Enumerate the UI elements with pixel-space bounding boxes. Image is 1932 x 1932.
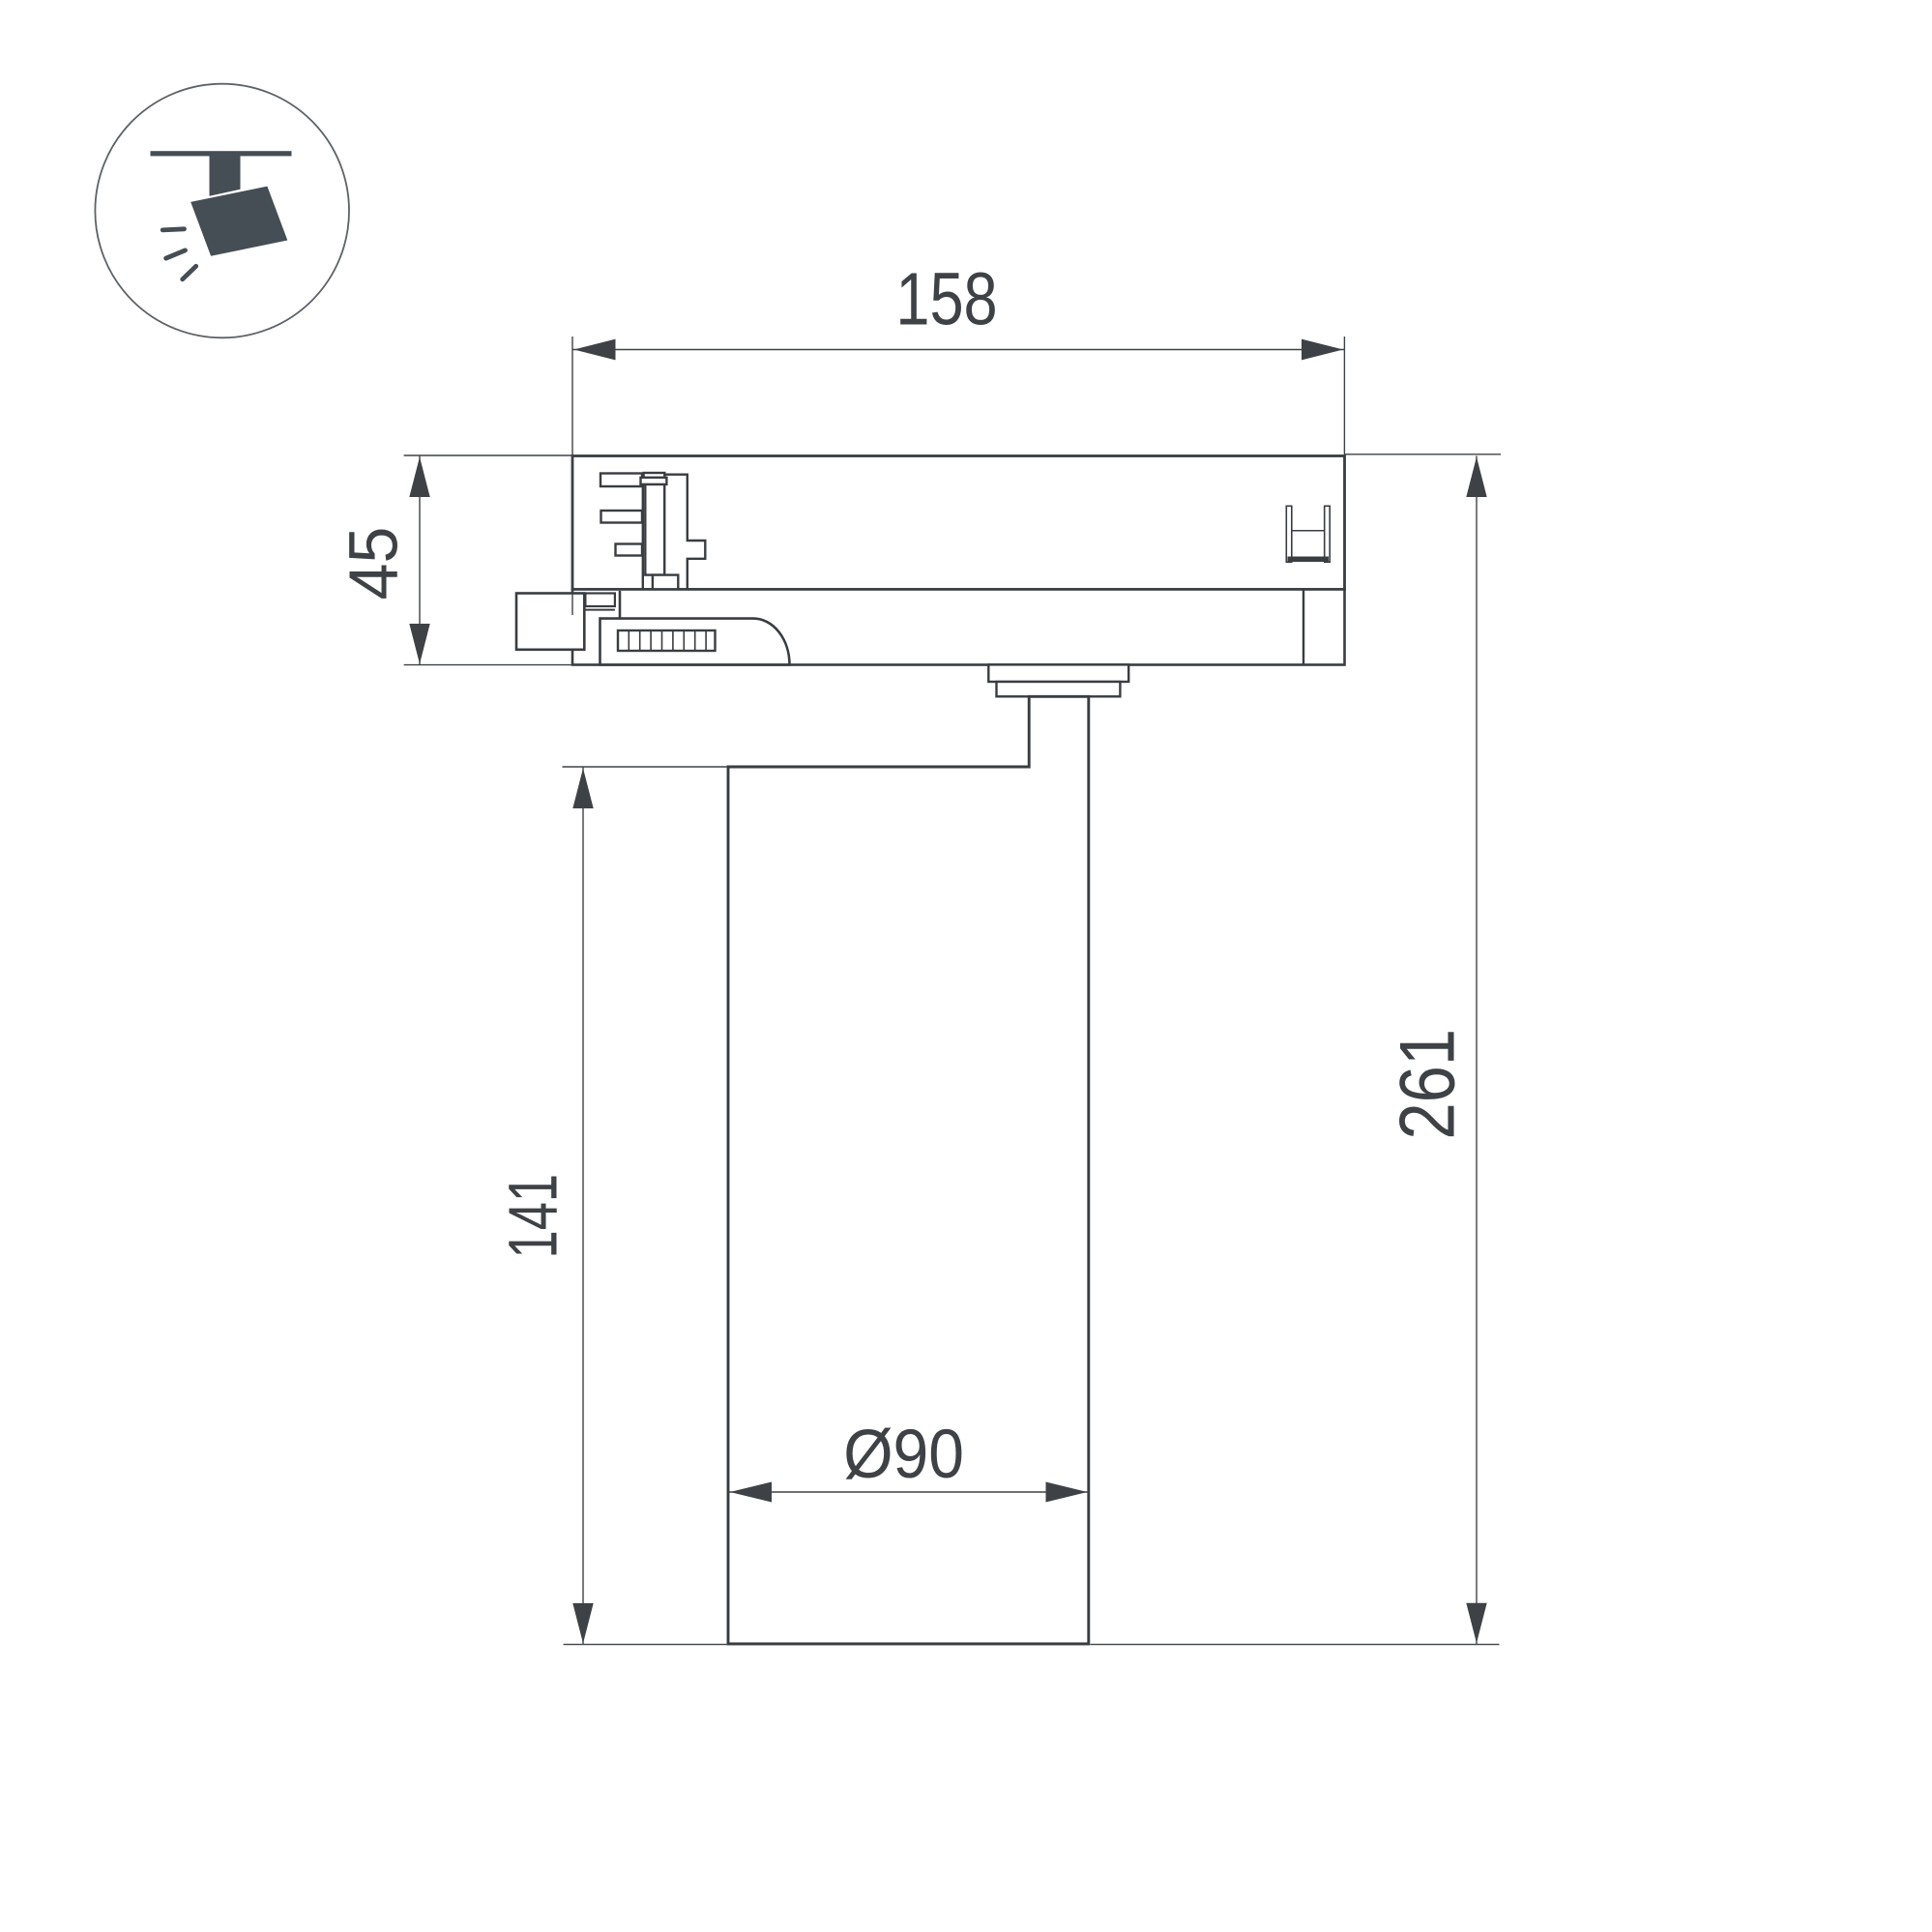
svg-text:158: 158 <box>895 257 997 340</box>
svg-text:261: 261 <box>1383 1029 1471 1140</box>
svg-text:141: 141 <box>495 1174 572 1259</box>
svg-text:45: 45 <box>335 527 412 600</box>
svg-text:Ø90: Ø90 <box>843 1416 964 1493</box>
